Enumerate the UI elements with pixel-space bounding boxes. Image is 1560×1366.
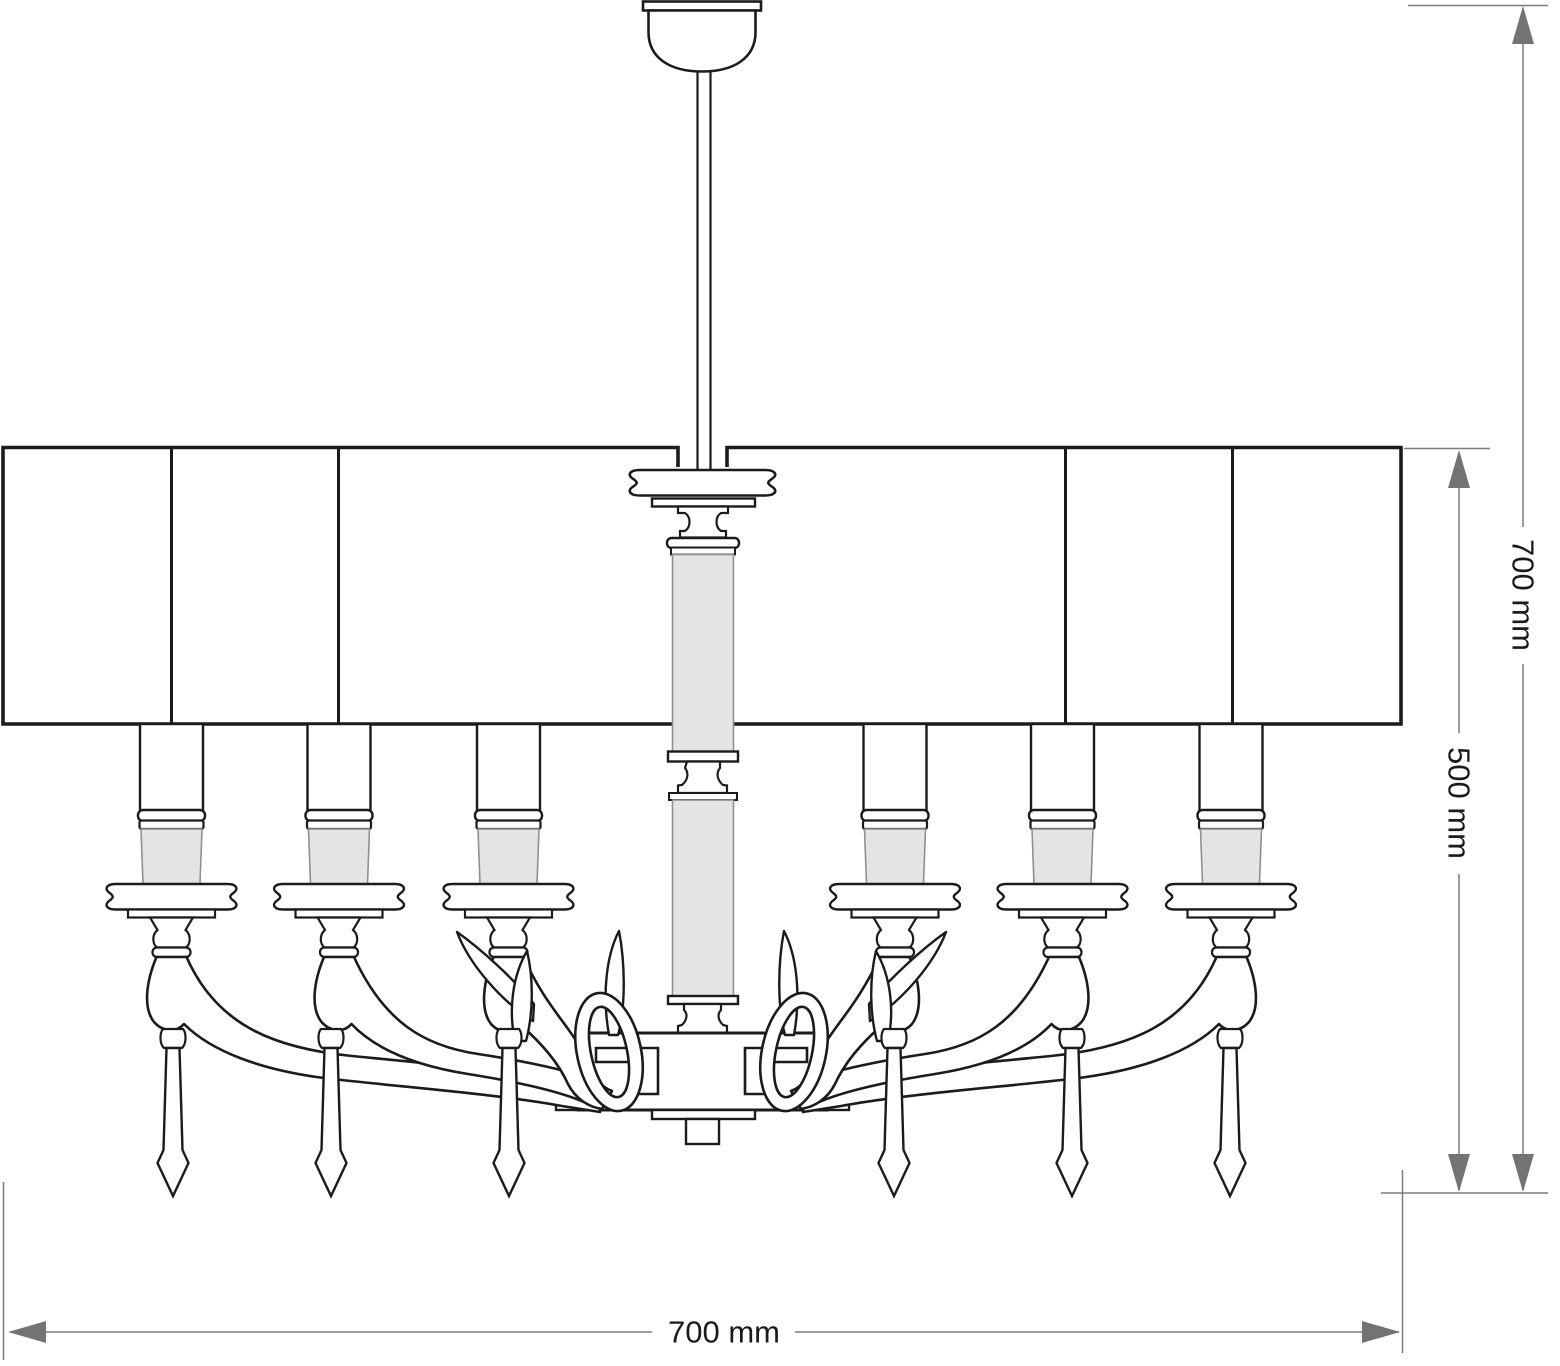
arrow-down-icon [1448,1154,1470,1192]
arrow-left-icon [8,1321,46,1343]
arrow-up-icon [1512,6,1534,44]
glass-column-upper [673,555,734,752]
arms-left [147,931,653,1117]
drawing-canvas: 700 mm 500 mm 700 mm [0,0,1560,1366]
chandelier-dimension-drawing: 700 mm 500 mm 700 mm [0,0,1560,1366]
center-bobeche [630,470,775,496]
candle [1166,724,1296,957]
crystal-pendant [158,1029,189,1196]
arrow-right-icon [1362,1321,1400,1343]
candle [444,724,574,957]
body-height-label: 500 mm [1442,747,1477,859]
overall-height-label: 700 mm [1506,539,1541,651]
arrow-down-icon [1512,1154,1534,1192]
hub-finial [686,1119,719,1144]
arms-right [750,931,1256,1117]
crystal-pendant [1215,1029,1246,1196]
candle [998,724,1128,957]
suspension-rod [698,72,711,471]
arrow-up-icon [1448,450,1470,488]
glass-column-lower [673,800,734,996]
shade-width-label: 700 mm [668,1315,780,1350]
candle [107,724,237,957]
candle [274,724,404,957]
ceiling-canopy [643,2,761,72]
candle [830,724,960,957]
crystal-pendant [494,1029,525,1196]
crystal-pendant [879,1029,910,1196]
